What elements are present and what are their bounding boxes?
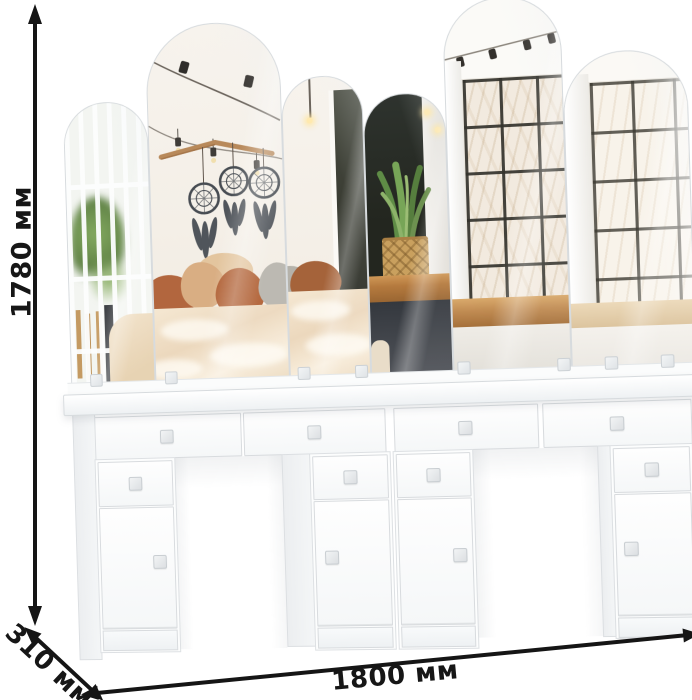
vanity-dressing-table — [0, 0, 692, 700]
kneehole-right — [473, 447, 603, 638]
mirror-panel-3 — [281, 74, 372, 390]
door-knob — [153, 555, 167, 569]
wicker-basket — [382, 236, 429, 279]
mirror-panel-5 — [442, 0, 572, 384]
mirror-clip — [165, 371, 178, 384]
door-knob — [624, 542, 639, 557]
pendant-bulb-cord — [308, 78, 311, 118]
drawer-knob — [160, 430, 174, 444]
mirror-clip — [90, 374, 103, 387]
pedestal-left-plinth — [103, 630, 179, 652]
pedestal-center-right-plinth — [401, 626, 476, 648]
drawer-knob — [458, 421, 473, 436]
pedestal-center-left-plinth — [317, 627, 393, 649]
reflection-window — [461, 73, 570, 304]
kneehole-left — [173, 455, 287, 649]
door-knob — [325, 550, 339, 564]
drawer-knob — [644, 462, 659, 477]
product-image: 1780 мм 310 мм 1800 мм — [0, 0, 692, 700]
mirror-panel-1 — [63, 100, 156, 397]
pendant-bulb — [307, 117, 313, 123]
mirror-clip — [297, 367, 310, 380]
height-dimension-label: 1780 мм — [7, 186, 38, 318]
mirror-clip — [605, 356, 619, 370]
mirror-clip — [661, 354, 675, 368]
wood-bench — [452, 295, 569, 328]
mirror-panel-6 — [562, 47, 692, 380]
drawer-knob — [426, 468, 441, 482]
mirror-clip — [355, 365, 368, 378]
drawer-knob — [343, 470, 357, 484]
drawer-knob — [307, 425, 321, 439]
mirror-clip — [557, 358, 571, 372]
mirror-clip — [457, 361, 471, 375]
drawer-knob — [610, 416, 625, 431]
mirror-panel-4 — [362, 91, 453, 386]
door-knob — [453, 548, 468, 562]
drawer-knob — [129, 477, 143, 491]
wood-bench — [369, 273, 450, 302]
mirror-panel-2 — [145, 19, 291, 394]
reflection-window-2 — [589, 77, 692, 305]
dreamcatcher-string-lights-art — [146, 20, 286, 274]
